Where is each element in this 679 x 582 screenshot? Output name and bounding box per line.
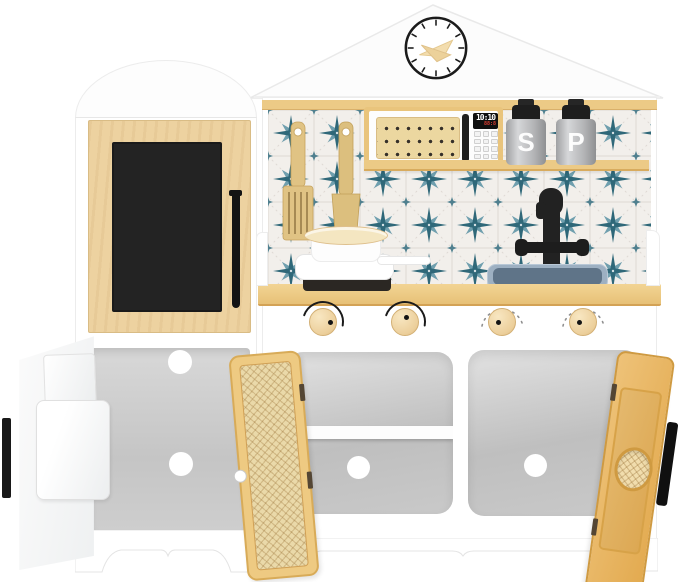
fridge-lower-compartment	[90, 348, 250, 532]
fridge-arched-top	[75, 60, 257, 118]
vent-hole	[347, 456, 370, 479]
knob-indicator-dot	[496, 320, 501, 325]
side-panel-left	[256, 232, 268, 286]
microwave-display: 10:10 88:8	[473, 113, 498, 129]
cabinet-shelf	[287, 426, 453, 439]
door-peg-knob	[233, 469, 247, 483]
door-hinge	[610, 384, 617, 402]
sink-basin	[493, 268, 602, 285]
pepper-shaker: P	[556, 119, 596, 165]
oven-door-handle	[656, 422, 679, 507]
fridge-door-handle	[232, 190, 240, 308]
analog-clock-icon	[400, 12, 472, 84]
side-panel-right	[646, 230, 660, 286]
microwave-keypad	[474, 131, 498, 159]
knob-markings	[296, 296, 616, 350]
toy-kitchen-photo: 10:10 88:8 S P	[0, 0, 679, 582]
pot-lid	[304, 226, 388, 245]
salt-shaker: S	[506, 119, 546, 165]
pepper-label: P	[567, 127, 584, 158]
fridge-lower-door-handle	[2, 418, 11, 498]
microwave-handle	[462, 114, 469, 162]
vent-hole	[524, 454, 547, 477]
door-hinge	[591, 518, 598, 536]
ice-dispenser-bin	[36, 400, 110, 500]
oven-round-window	[612, 445, 656, 494]
stove-knob	[569, 308, 597, 336]
pot-handle	[377, 256, 431, 265]
microwave-rattan-window	[376, 117, 460, 159]
microwave-timer: 88:8	[473, 122, 498, 127]
chalkboard-panel	[112, 142, 222, 312]
vent-hole	[168, 350, 192, 374]
knob-indicator-dot	[328, 320, 333, 325]
knob-indicator-dot	[404, 315, 409, 320]
vent-hole	[169, 452, 193, 476]
stove-knob	[309, 308, 337, 336]
rattan-mesh-panel	[239, 361, 309, 571]
knob-indicator-dot	[577, 320, 582, 325]
fridge-base-skirt	[75, 530, 257, 576]
slotted-spatula-icon	[283, 122, 313, 240]
fridge-door-handle-cap	[229, 190, 242, 196]
stove-knob	[488, 308, 516, 336]
stove-knob	[391, 308, 419, 336]
salt-label: S	[517, 127, 534, 158]
